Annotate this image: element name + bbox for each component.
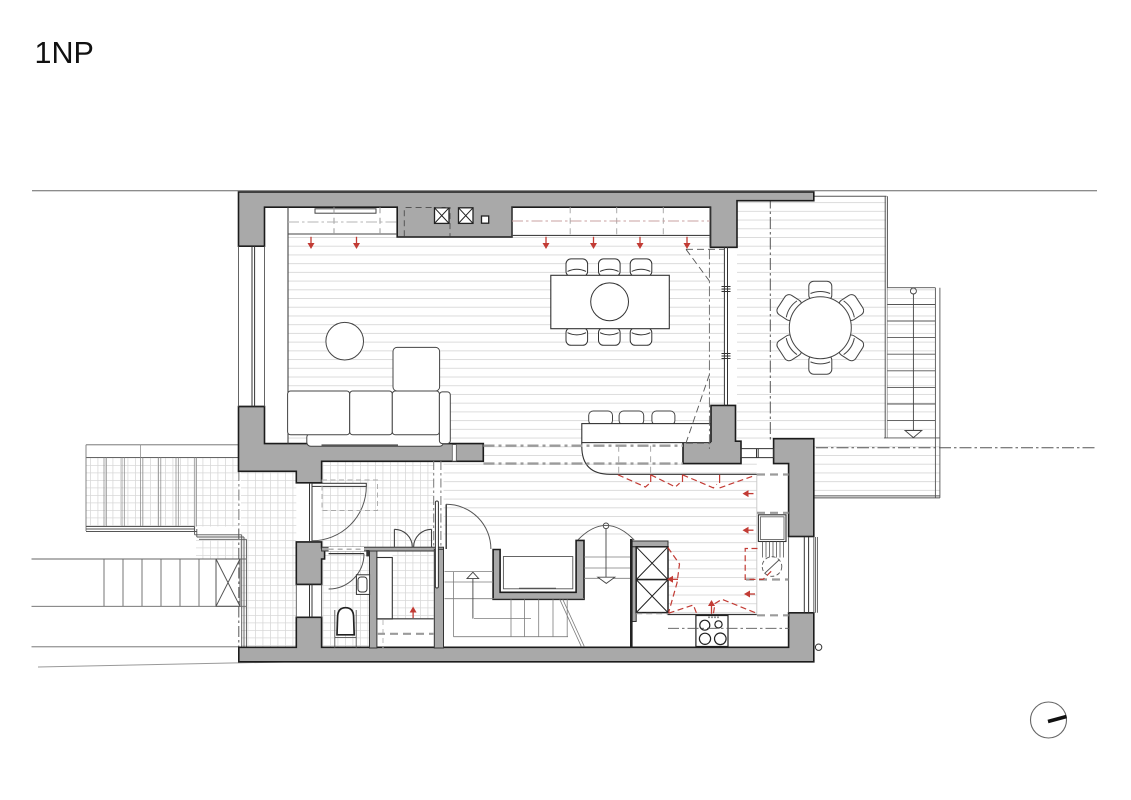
svg-text:1NP: 1NP [35, 36, 94, 70]
